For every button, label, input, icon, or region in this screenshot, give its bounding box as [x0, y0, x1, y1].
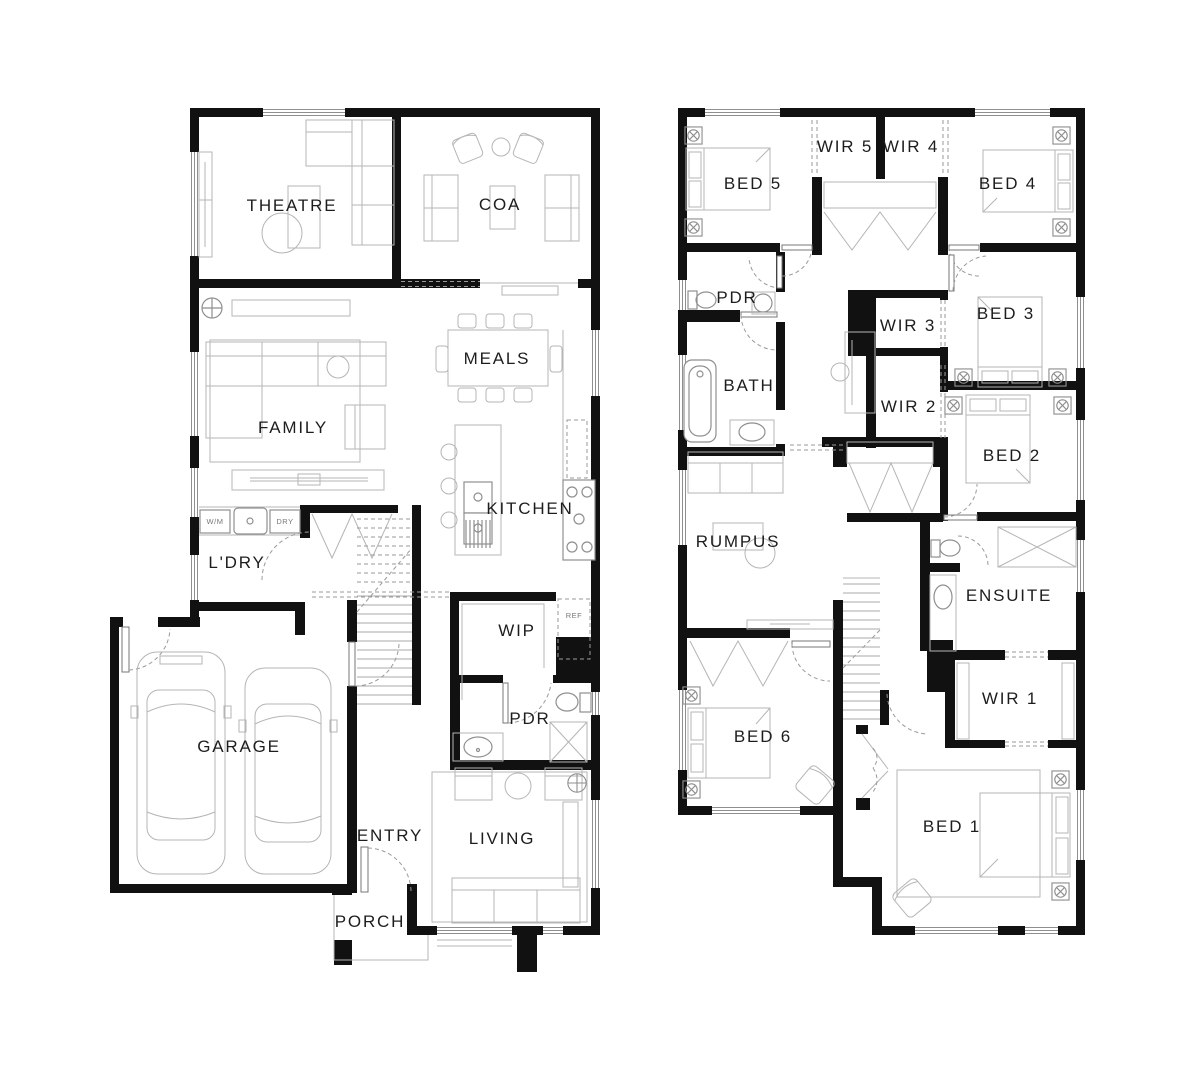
room-label-wir3: WIR 3 — [880, 316, 936, 335]
room-label-entry: ENTRY — [357, 826, 423, 845]
room-label-wir1: WIR 1 — [982, 689, 1038, 708]
room-label-kitchen: KITCHEN — [486, 499, 573, 518]
first-floor-labels: BED 5 WIR 5 WIR 4 BED 4 PDR WIR 3 BED 3 … — [696, 137, 1052, 836]
hall-linen-cupboard-top — [824, 182, 936, 250]
first-floor-plan: BED 5 WIR 5 WIR 4 BED 4 PDR WIR 3 BED 3 … — [678, 108, 1085, 935]
first-floor-staircase — [843, 578, 880, 719]
room-label-wip: WIP — [498, 621, 536, 640]
laundry-door-swing — [262, 532, 310, 580]
first-floor-dashed-openings — [790, 120, 1048, 746]
garage-internal-door-panel — [349, 642, 355, 686]
room-label-living: LIVING — [469, 829, 536, 848]
room-label-wir2: WIR 2 — [881, 397, 937, 416]
room-label-bed3: BED 3 — [977, 304, 1035, 323]
bedside-table-icon — [1053, 127, 1070, 144]
bedside-table-icon — [685, 127, 702, 144]
theatre-furniture — [199, 120, 394, 257]
garage-car-1 — [131, 652, 231, 874]
room-label-laundry: L'DRY — [208, 553, 265, 572]
powder-door-panel — [503, 683, 508, 723]
appliance-label-wm: W/M — [207, 517, 224, 526]
floor-plan-page: THEATRE COA MEALS FAMILY KITCHEN L'DRY W… — [0, 0, 1191, 1079]
room-label-bed5: BED 5 — [724, 174, 782, 193]
bedside-table-icon — [685, 219, 702, 236]
hall-linen-cupboard-mid — [847, 442, 933, 512]
bedside-table-icon — [1052, 883, 1069, 900]
ceiling-light-icon — [202, 298, 222, 318]
room-label-bed4: BED 4 — [979, 174, 1037, 193]
ground-staircase — [357, 519, 412, 704]
appliance-label-dry: DRY — [276, 517, 293, 526]
ceiling-light-icon — [568, 774, 586, 792]
room-label-meals: MEALS — [464, 349, 531, 368]
front-door-panel — [361, 847, 368, 892]
family-furniture — [202, 298, 386, 490]
room-label-bed2: BED 2 — [983, 446, 1041, 465]
room-label-rumpus: RUMPUS — [696, 532, 780, 551]
bed6-furniture — [683, 641, 836, 806]
room-label-bed1: BED 1 — [923, 817, 981, 836]
room-label-theatre: THEATRE — [247, 196, 338, 215]
ground-floor-dashed-openings — [312, 282, 587, 598]
garage-side-door-panel — [122, 627, 129, 672]
bed2-furniture — [945, 395, 1071, 483]
bedside-table-icon — [1054, 397, 1071, 414]
cooktop-icon — [563, 480, 595, 560]
room-label-bath: BATH — [723, 376, 774, 395]
room-label-ensuite: ENSUITE — [966, 586, 1052, 605]
bedside-table-icon — [1053, 219, 1070, 236]
bed6-robe-bifold-doors — [690, 641, 788, 686]
room-label-bed6: BED 6 — [734, 727, 792, 746]
bed1-furniture — [891, 770, 1070, 919]
appliance-label-ref: REF — [566, 611, 583, 620]
room-label-powder-upper: PDR — [716, 288, 757, 307]
room-label-wir5: WIR 5 — [817, 137, 873, 156]
room-label-coa: COA — [479, 195, 521, 214]
room-label-powder: PDR — [509, 709, 550, 728]
coa-furniture — [424, 132, 579, 241]
hall-closet-bifold-doors — [312, 514, 392, 558]
bath-fixtures — [684, 360, 774, 445]
room-label-family: FAMILY — [258, 418, 328, 437]
room-label-garage: GARAGE — [197, 737, 281, 756]
bedside-table-icon — [945, 397, 962, 414]
garage-car-2 — [239, 668, 337, 874]
room-label-porch: PORCH — [335, 912, 405, 931]
ground-floor-plan: THEATRE COA MEALS FAMILY KITCHEN L'DRY W… — [110, 108, 600, 972]
floor-plan-drawing: THEATRE COA MEALS FAMILY KITCHEN L'DRY W… — [0, 0, 1191, 1079]
bedside-table-icon — [1052, 771, 1069, 788]
room-label-wir4: WIR 4 — [883, 137, 939, 156]
